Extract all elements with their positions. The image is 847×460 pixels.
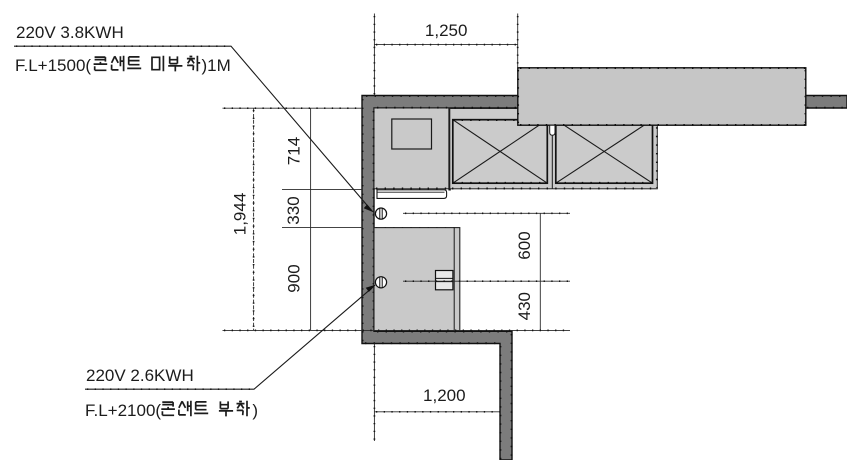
svg-text:220V 3.8KWH: 220V 3.8KWH [16, 23, 124, 42]
svg-text:): ) [252, 401, 258, 420]
svg-text:220V 2.6KWH: 220V 2.6KWH [86, 366, 194, 385]
svg-text:600: 600 [515, 231, 534, 259]
svg-text:330: 330 [284, 196, 303, 224]
svg-text:900: 900 [285, 264, 304, 292]
svg-text:1,200: 1,200 [423, 386, 466, 405]
svg-text:)1M: )1M [202, 56, 231, 75]
svg-text:F.L+1500(: F.L+1500( [15, 56, 91, 75]
svg-text:1,944: 1,944 [231, 193, 250, 236]
svg-text:1,250: 1,250 [425, 21, 468, 40]
svg-text:430: 430 [515, 292, 534, 320]
svg-text:F.L+2100(: F.L+2100( [85, 401, 161, 420]
svg-text:714: 714 [285, 137, 304, 165]
